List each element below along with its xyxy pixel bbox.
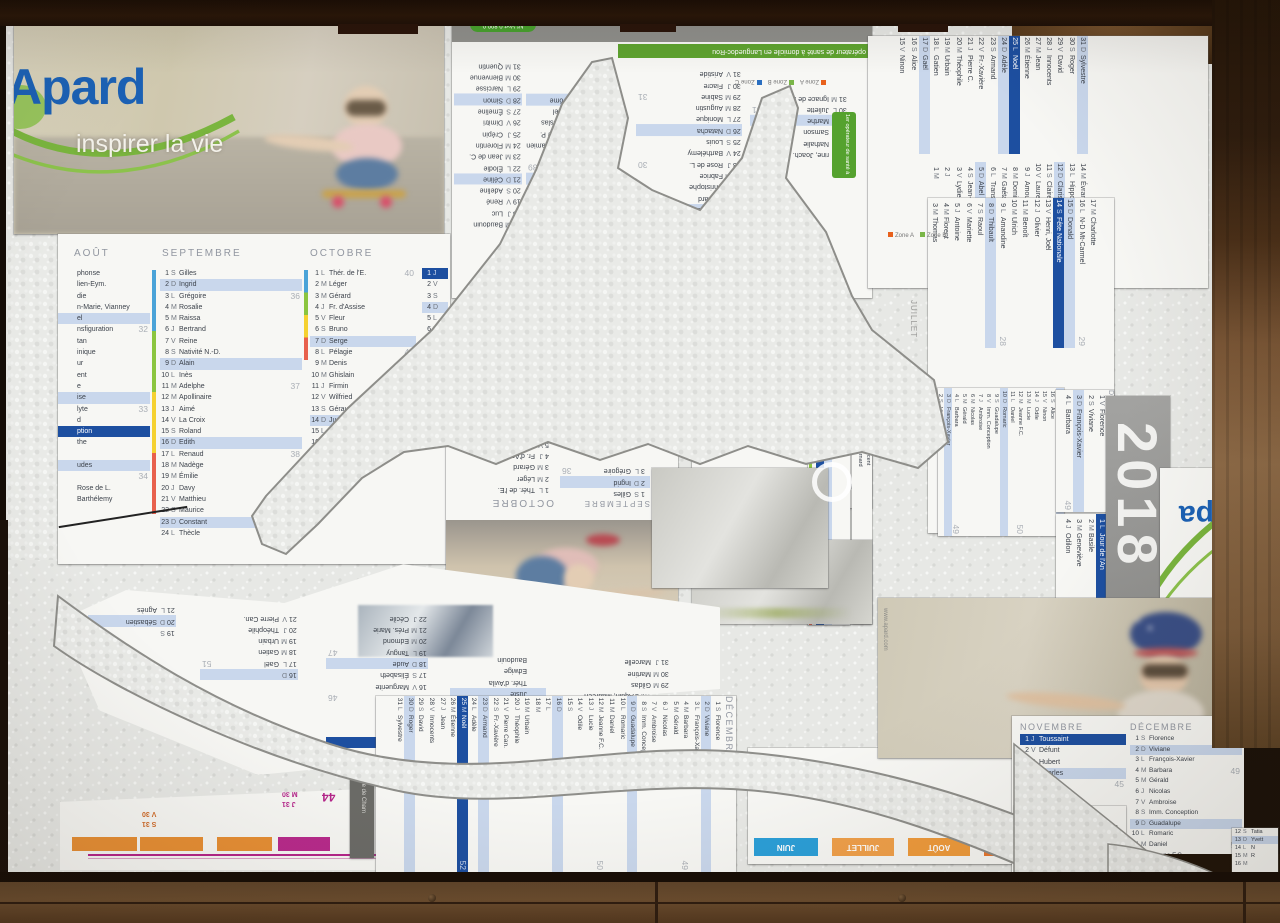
day-row: 8	[422, 347, 448, 358]
tab-juin-mini: JUIN	[1078, 834, 1124, 848]
day-row: 15S	[563, 696, 574, 872]
day-row: Vinc. de P.	[526, 128, 592, 139]
day-row: 10LInès	[160, 370, 302, 381]
day-row: 22LÉlodie	[454, 162, 522, 173]
day-row: 19DJean-Eudes	[636, 204, 742, 215]
day-row: 26VDimitri	[454, 116, 522, 127]
magenta-day-mark: J 31	[282, 800, 296, 807]
day-row: 25JCrépin	[454, 128, 522, 139]
day-row: 21VPierre Can.	[200, 612, 298, 623]
dec2017-end-column-rotated: 31DSylvestre30SRoger29VDavid28JInnocents…	[896, 36, 1088, 154]
day-row: Côme, Damien	[526, 139, 592, 150]
day-row: ent	[58, 370, 150, 381]
day-row: 5L	[422, 313, 448, 324]
orange-day-pill: D 1	[945, 811, 960, 818]
day-row: 12MJeanne F.C.50	[1016, 388, 1024, 536]
tab-mai-mini: MAI	[1028, 834, 1070, 848]
dec-strip-flipped: 16D17LGaël5118MGatien19MUrbain20JThéophi…	[200, 608, 298, 680]
day-row: 1LThér. de l'E.40	[310, 268, 416, 279]
day-row: 2SViviane	[938, 388, 944, 536]
day-row: 19MÉmilie	[160, 471, 302, 482]
day-row: 30MBienvenue	[454, 71, 522, 82]
day-row: 15MR	[1232, 852, 1278, 860]
day-row: 6JNicolas	[1130, 787, 1242, 798]
month-header-aout: AOÛT	[74, 248, 110, 259]
day-row: 28MAugustin	[636, 102, 742, 113]
day-row: 6M	[1020, 790, 1126, 801]
day-row: 12MApollinaire	[160, 392, 302, 403]
day-row: ise	[58, 392, 150, 403]
day-row: 16DEdith	[160, 437, 302, 448]
green-smudge	[702, 608, 852, 618]
day-row: 19MUrbain	[200, 635, 298, 646]
day-row: 13DYvett	[1232, 836, 1278, 844]
day-row: 17MBaudouin	[454, 218, 522, 229]
day-row	[58, 449, 150, 460]
day-row: 29VDavid	[1054, 36, 1065, 154]
day-row: 3LFrançois-Xavier	[1130, 755, 1242, 766]
day-row: 30SRoger	[1065, 36, 1076, 154]
day-row: 18MGatien	[200, 646, 298, 657]
day-row: 15LThér. d'A.	[310, 426, 416, 437]
day-row: 19MUrbain	[941, 36, 952, 154]
grey-address-strip: Rue de Cham	[350, 772, 374, 858]
goggles-red-upside	[586, 534, 620, 546]
day-row: 13JLucie	[584, 696, 595, 872]
day-row: 25LNoël	[1009, 36, 1020, 154]
day-row: 18DAude	[326, 658, 428, 669]
day-row: 31VAristide	[636, 68, 742, 79]
screw-icon	[428, 894, 436, 902]
day-row: 12STatia	[1232, 828, 1278, 836]
day-row: 4JFr. d'Assise	[310, 302, 416, 313]
day-row: 7VReine	[160, 336, 302, 347]
calendar-decembre-rotated-strip: DÉCEMBRE 1SFlorence2DViviane3LFrançois-X…	[376, 696, 736, 872]
day-row: 4LBarbara49	[1062, 390, 1073, 512]
day-row: 28JInnocents	[1043, 36, 1054, 154]
www-apard-text: www.apard.com	[882, 608, 888, 651]
day-row: 12JOlivier	[1030, 198, 1041, 348]
day-row: 26DNatacha	[636, 124, 742, 135]
day-row: 29LNarcisse	[454, 83, 522, 94]
calendar-janvier-sliver: 12STatia13DYvett14LN15MR16M	[1232, 828, 1278, 876]
day-row: 10MUlrich	[1008, 198, 1019, 348]
day-row: 14VOdile	[574, 696, 585, 872]
day-row: 16LN-D Mt-Carmel29	[1075, 198, 1086, 348]
day-row: Venceslas	[526, 117, 592, 128]
day-row: 7SRaoul	[974, 198, 985, 348]
month-header-septembre: SEPTEMBRE	[162, 248, 242, 259]
day-row: 2DViviane	[701, 696, 712, 872]
day-row: 22SFr.-Xavière	[489, 696, 500, 872]
day-row: 21LAgnès	[88, 604, 176, 615]
svg-text:pa: pa	[1179, 499, 1214, 532]
day-row: 27LMonique	[636, 113, 742, 124]
day-row: 4DCharles	[1020, 768, 1126, 779]
day-row: 4MFlorent	[940, 198, 951, 348]
day-row: die	[58, 291, 150, 302]
decembre-rotated-header: DÉCEMBRE	[724, 696, 734, 872]
day-row: 31LSylvestre	[394, 696, 405, 872]
septembre-end-column-flipped: 22SMaurice23DConstant24LThècle3925MHerma…	[526, 94, 592, 196]
day-row: 22MFabrice	[636, 170, 742, 181]
day-row: 16MEdwige	[310, 437, 416, 448]
day-row: 10DRomaric	[1000, 388, 1008, 536]
day-row: inique	[58, 347, 150, 358]
day-row: 18MNadège	[160, 460, 302, 471]
day-row: 6JBertrand	[160, 324, 302, 335]
day-row: 27SÉmeline	[454, 105, 522, 116]
red-day-mark: M 3	[986, 821, 998, 828]
day-row: 16SAlice	[1048, 388, 1056, 536]
mini-month-tabs-flipped: JUIN MAI S 1	[1014, 806, 1126, 850]
day-row: 20LBernard	[636, 192, 742, 203]
skateboard-wheel	[332, 196, 344, 208]
day-row: 8VImm. Conception	[984, 388, 992, 536]
day-row: 5MGérald	[1130, 776, 1242, 787]
day-row: 20JDavy	[160, 483, 302, 494]
octobre-end-column-flipped: 17MBaudouin18JLuc19VRené20SAdeline21DCél…	[454, 60, 522, 229]
day-row: 30DRoger	[404, 696, 415, 872]
day-row: 5MRaissa	[160, 313, 302, 324]
photo-calendar-collage: Apard inspirer la vie AOÛT SEPTEMBRE OCT…	[0, 0, 1280, 923]
day-row: 24MFlorentin	[454, 139, 522, 150]
tab-juillet: JUILLET	[832, 838, 894, 856]
day-row: el	[58, 313, 150, 324]
day-row: 17MBaudouin	[310, 449, 416, 460]
day-row: 34	[58, 471, 150, 482]
day-row: 3DFrançois-Xavier	[944, 388, 952, 536]
day-row: 18LGatien	[930, 36, 941, 154]
calendar-sept-oct: AOÛT SEPTEMBRE OCTOBRE phonselien-Eym.di…	[58, 234, 450, 564]
day-row: n-Marie, Vianney	[58, 302, 150, 313]
septembre-start-column-flipped: SEPTEMBRE 1SGilles2DIngrid3LGrégoire36	[560, 450, 650, 508]
frame-right-bar	[1212, 0, 1280, 748]
octobre-day-column: 1LThér. de l'E.402MLéger3MGérard4JFr. d'…	[310, 268, 416, 460]
apard-header-photo: Apard inspirer la vie	[14, 24, 444, 234]
day-row: 8DThibault	[985, 198, 996, 348]
day-row: 9DAlain	[160, 358, 302, 369]
day-row: 5LSylvie45	[1020, 779, 1126, 790]
day-row: 5VFleur	[310, 313, 416, 324]
day-row: 1JToussaint	[1020, 734, 1126, 745]
day-row: 6SBruno	[452, 427, 554, 438]
green-tab: 1er opérateur de santé à domicile en Lan…	[832, 112, 856, 178]
day-row: 14VLa Croix	[160, 415, 302, 426]
day-row: 18SHélène	[636, 215, 742, 226]
day-row: 13VHenri, Joël	[1042, 198, 1053, 348]
day-row: 15DDonald	[1064, 198, 1075, 348]
day-row: 20MThéophile	[952, 36, 963, 154]
day-row: 20JThéophile	[510, 696, 521, 872]
day-row: 4LBarbara49	[952, 388, 960, 536]
decembre-rotated-column: 1SFlorence2DViviane3LFrançois-Xavier4MBa…	[394, 696, 722, 872]
day-row: 3SHubert	[1020, 757, 1126, 768]
tab-magenta	[278, 837, 330, 851]
day-row: 2LMartinien27	[928, 198, 929, 348]
day-row: 4MBarbara49	[680, 696, 691, 872]
day-row: 17LGaël51	[200, 657, 298, 668]
day-row: 22SMaurice	[526, 184, 592, 195]
jan-strip-flipped: 19S20DSébastien21LAgnès	[88, 598, 176, 638]
day-row: 17VHyacinthe	[636, 226, 742, 237]
aout-day-column: phonselien-Eym.dien-Marie, Vianneyelnsfi…	[58, 268, 150, 505]
day-row: d	[58, 415, 150, 426]
day-row: 15MAssomption	[636, 249, 742, 260]
kid2-arm	[1006, 689, 1127, 713]
red-day-mark: M 4	[986, 811, 998, 818]
kid-jeans	[336, 158, 398, 190]
rainbow-stripe	[304, 270, 308, 360]
day-row: 24LThècle39	[526, 162, 592, 173]
day-row: lien-Eym.	[58, 279, 150, 290]
day-row: 9LAmandine28	[996, 198, 1007, 348]
day-row: 2DIngrid	[560, 476, 650, 487]
day-row: 4D	[422, 302, 448, 313]
day-row: 15VNinon	[896, 36, 907, 154]
day-row: 12MJeanne F.C.50	[595, 696, 606, 872]
day-row: ption	[58, 426, 150, 437]
day-row: 18M	[531, 696, 542, 872]
day-row: 16VMarguerite	[326, 680, 428, 691]
day-row: 21MPrés. Marie	[326, 624, 428, 635]
day-row: 3S	[422, 291, 448, 302]
day-row: 16SAlice	[907, 36, 918, 154]
kid2-goggles	[1142, 664, 1188, 678]
day-row: 20DSébastien	[88, 615, 176, 626]
day-row: 13JAimé	[160, 404, 302, 415]
day-row: 3MGérard	[452, 461, 554, 472]
frame-top	[0, 0, 1280, 26]
rainbow-stripe	[152, 270, 156, 514]
day-row: 10MGhislain	[310, 370, 416, 381]
day-row: 17SÉlisabeth	[326, 669, 428, 680]
day-row: 31JMarcelle	[552, 656, 670, 667]
day-row: 6SBruno	[310, 324, 416, 335]
day-row: 8SNativité N.-D.	[160, 347, 302, 358]
day-row: 7DSerge	[310, 336, 416, 347]
day-row: 28VInnocents	[425, 696, 436, 872]
day-row: 29MGildas	[552, 679, 670, 690]
day-row: 31DSylvestre	[1077, 36, 1088, 154]
street-text: Rue de Cham	[360, 776, 366, 813]
photo-fragment-pale	[652, 468, 828, 588]
day-row: 3LGrégoire36	[160, 291, 302, 302]
janvier-sliver-column: 12STatia13DYvett14LN15MR16M	[1232, 828, 1278, 868]
tab-orange-1	[72, 837, 137, 851]
day-row: 31MQuentin	[454, 60, 522, 71]
day-row: 2SViviane	[1084, 390, 1095, 512]
day-row: Jérôme	[526, 94, 592, 105]
day-row: 1J	[422, 268, 448, 279]
day-row: 9DGuadalupe	[627, 696, 638, 872]
day-row: 13SGéraud	[310, 404, 416, 415]
day-row: 2MLéger	[452, 472, 554, 483]
day-row: 20MEdmond	[326, 635, 428, 646]
day-row: Rose de L.	[58, 483, 150, 494]
day-row: Michel	[526, 105, 592, 116]
day-row: 28DSimon	[454, 94, 522, 105]
day-row: 24LAdèle	[468, 696, 479, 872]
day-row: 2DIngrid	[160, 279, 302, 290]
day-row: 27MJean	[1032, 36, 1043, 154]
day-row: 11MDaniel50	[1130, 840, 1242, 851]
skateboard-wheel	[380, 196, 392, 208]
day-row: 7DSerge	[452, 416, 554, 427]
day-row: 11MDaniel	[605, 696, 616, 872]
kid-goggles-icon	[346, 100, 386, 116]
orange-day-mark: S 31	[142, 820, 156, 827]
day-row: 27JJean	[436, 696, 447, 872]
day-row: 10LRomaric	[616, 696, 627, 872]
day-row: 3MThomas	[929, 198, 940, 348]
octobre-start-column-flipped: OCTOBRE 1LThér. de l'E.2MLéger3MGérard4J…	[452, 396, 554, 508]
tab-aout: AOÛT	[908, 838, 970, 856]
day-row: tan	[58, 336, 150, 347]
day-row: the	[58, 437, 150, 448]
day-row: 19MUrbain	[521, 696, 532, 872]
day-row: 7VAmbroise	[1130, 798, 1242, 809]
day-row: 21VPierre Can.	[500, 696, 511, 872]
day-row: 21VMatthieu	[160, 494, 302, 505]
day-row: 11MBenoît	[1019, 198, 1030, 348]
board-notch	[620, 24, 676, 32]
tab-orange-2	[140, 837, 203, 851]
day-row: 23MJean de C.	[454, 150, 522, 161]
day-row: nsfiguration32	[58, 324, 150, 335]
day-row: 2MLéger	[310, 279, 416, 290]
tab-juin: JUIN	[754, 838, 818, 856]
day-row: 13MLucie	[1024, 388, 1032, 536]
calendar-dec2017-rotated: 17DGaël16SAlice15VNinon14JOdile13MLucie1…	[938, 388, 1064, 536]
day-row: 30MMartine	[552, 667, 670, 678]
day-row: 19S	[88, 627, 176, 638]
day-row: 16JArmel	[636, 237, 742, 248]
day-row: lyte33	[58, 404, 150, 415]
day-row: 8SImm. Conception	[637, 696, 648, 872]
day-row: 8L	[452, 405, 554, 416]
dec2017-column-rotated: 17DGaël16SAlice15VNinon14JOdile13MLucie1…	[938, 388, 1064, 536]
day-row: 5VFleur	[452, 439, 554, 450]
day-row: 9MDenis	[310, 358, 416, 369]
day-row: phonse	[58, 268, 150, 279]
apard-logo: Apard	[14, 58, 145, 116]
day-row: 16D	[200, 669, 298, 680]
day-row: 8LPélagie41	[310, 347, 416, 358]
white-ring-glyph	[812, 462, 852, 502]
day-row: 23DConstant	[526, 173, 592, 184]
day-row: 3DFrançois-Xavier	[1073, 390, 1084, 512]
day-row: 14JOdile	[1032, 388, 1040, 536]
day-row: 20JThéophile	[200, 624, 298, 635]
day-row: 29SDavid	[415, 696, 426, 872]
red-day-mark: L 2	[950, 821, 960, 828]
day-row: 21DCéline	[454, 173, 522, 184]
day-row: 7VAmbroise	[648, 696, 659, 872]
day-row: 9SGuadalupe	[992, 388, 1000, 536]
day-row: 2V	[422, 279, 448, 290]
day-row: 8SImm. Conception	[1130, 808, 1242, 819]
day-row: 3LFrançois-Xavier	[690, 696, 701, 872]
day-row: 1SGilles	[560, 488, 650, 499]
day-row: 4JFr. d'Assise	[452, 450, 554, 461]
day-row: 15VNinon	[1040, 388, 1048, 536]
green-tab-label: 1er opérateur de santé à domicile en Lan…	[844, 114, 850, 176]
aout-end-column-flipped: 15MAssomption16JArmel17VHyacinthe18SHélè…	[636, 68, 742, 260]
novembre-sliver-column: 1J2V3S4D5L6M7M8	[422, 268, 448, 358]
day-row: 19VRené	[454, 196, 522, 207]
day-row: 6VMariette	[962, 198, 973, 348]
day-row: 4MBarbara49	[1130, 766, 1242, 777]
day-row: 2VDéfunt	[1020, 745, 1126, 756]
day-row: Edwige	[450, 665, 546, 676]
day-row: 14DJuste	[310, 415, 416, 426]
dec2017-first-days: 1VFlorence2SViviane3DFrançois-Xavier4LBa…	[1062, 390, 1107, 512]
day-row: 24VBarthélemy	[636, 147, 742, 158]
day-row: 26MÉtienne	[447, 696, 458, 872]
day-row: 9DGuadalupe	[1130, 819, 1242, 830]
day-row: 23DArmand	[478, 696, 489, 872]
orange-day-mark: V 30	[142, 810, 156, 817]
day-row: e	[58, 381, 150, 392]
zone-a-swatch	[821, 80, 826, 85]
day-row: 25MHermann	[526, 150, 592, 161]
frame-bottom-planks	[0, 872, 1280, 923]
day-row: 17LRenaud38	[160, 449, 302, 460]
day-row: 18JLuc	[454, 207, 522, 218]
s1-row: S 1	[1107, 823, 1118, 830]
zone-legend-small: Zone A Zone B	[888, 232, 946, 239]
day-row: 24LThècle39	[160, 528, 302, 539]
day-row: 16M	[1232, 860, 1278, 868]
board-notch	[898, 24, 948, 32]
zone-c-swatch	[757, 80, 762, 85]
day-row: 19LTanguy47	[326, 646, 428, 657]
day-row: 24DAdèle	[998, 36, 1009, 154]
day-row: 23JRose de L.30	[636, 158, 742, 169]
day-row: 1SGilles	[160, 268, 302, 279]
month-header-octobre: OCTOBRE	[310, 248, 373, 259]
day-row: 5MGérald	[669, 696, 680, 872]
board-notch	[338, 24, 418, 34]
day-row: 14SFête Nationale	[1053, 198, 1064, 348]
day-row: Thér. d'Avila	[450, 676, 546, 687]
brand-tagline: inspirer la vie	[76, 130, 223, 159]
day-row: 25MNoël52	[457, 696, 468, 872]
day-row: Barthélemy	[58, 494, 150, 505]
day-row: 21MChristophe	[636, 181, 742, 192]
day-row: 5JAntoine	[951, 198, 962, 348]
day-row: 1SFlorence	[711, 696, 722, 872]
day-row: 29MSabine31	[636, 91, 742, 102]
day-row: 6JNicolas	[658, 696, 669, 872]
day-row: Baudouin	[450, 654, 546, 665]
day-row: 3LGrégoire36	[560, 465, 650, 476]
day-row: 31MIgnace de L.	[750, 92, 848, 103]
slogan-strip: 1er opérateur de santé à domicile en Lan…	[618, 44, 884, 58]
day-row: 5MGérald	[960, 388, 968, 536]
calendar-upside-down-top: N° Vert 0 800 0 apard.com 1er opérateur …	[452, 8, 872, 298]
day-row: 17DGaël	[919, 36, 930, 154]
day-row: 7M	[422, 336, 448, 347]
day-row: 4MRosalie	[160, 302, 302, 313]
frame-edge-left	[0, 520, 8, 880]
day-row: 11MAdelphe37	[160, 381, 302, 392]
day-row: 6M	[422, 324, 448, 335]
day-row: 17L	[542, 696, 553, 872]
septembre-day-column: 1SGilles2DIngrid3LGrégoire364MRosalie5MR…	[160, 268, 302, 539]
day-row: 11LDaniel	[1008, 388, 1016, 536]
